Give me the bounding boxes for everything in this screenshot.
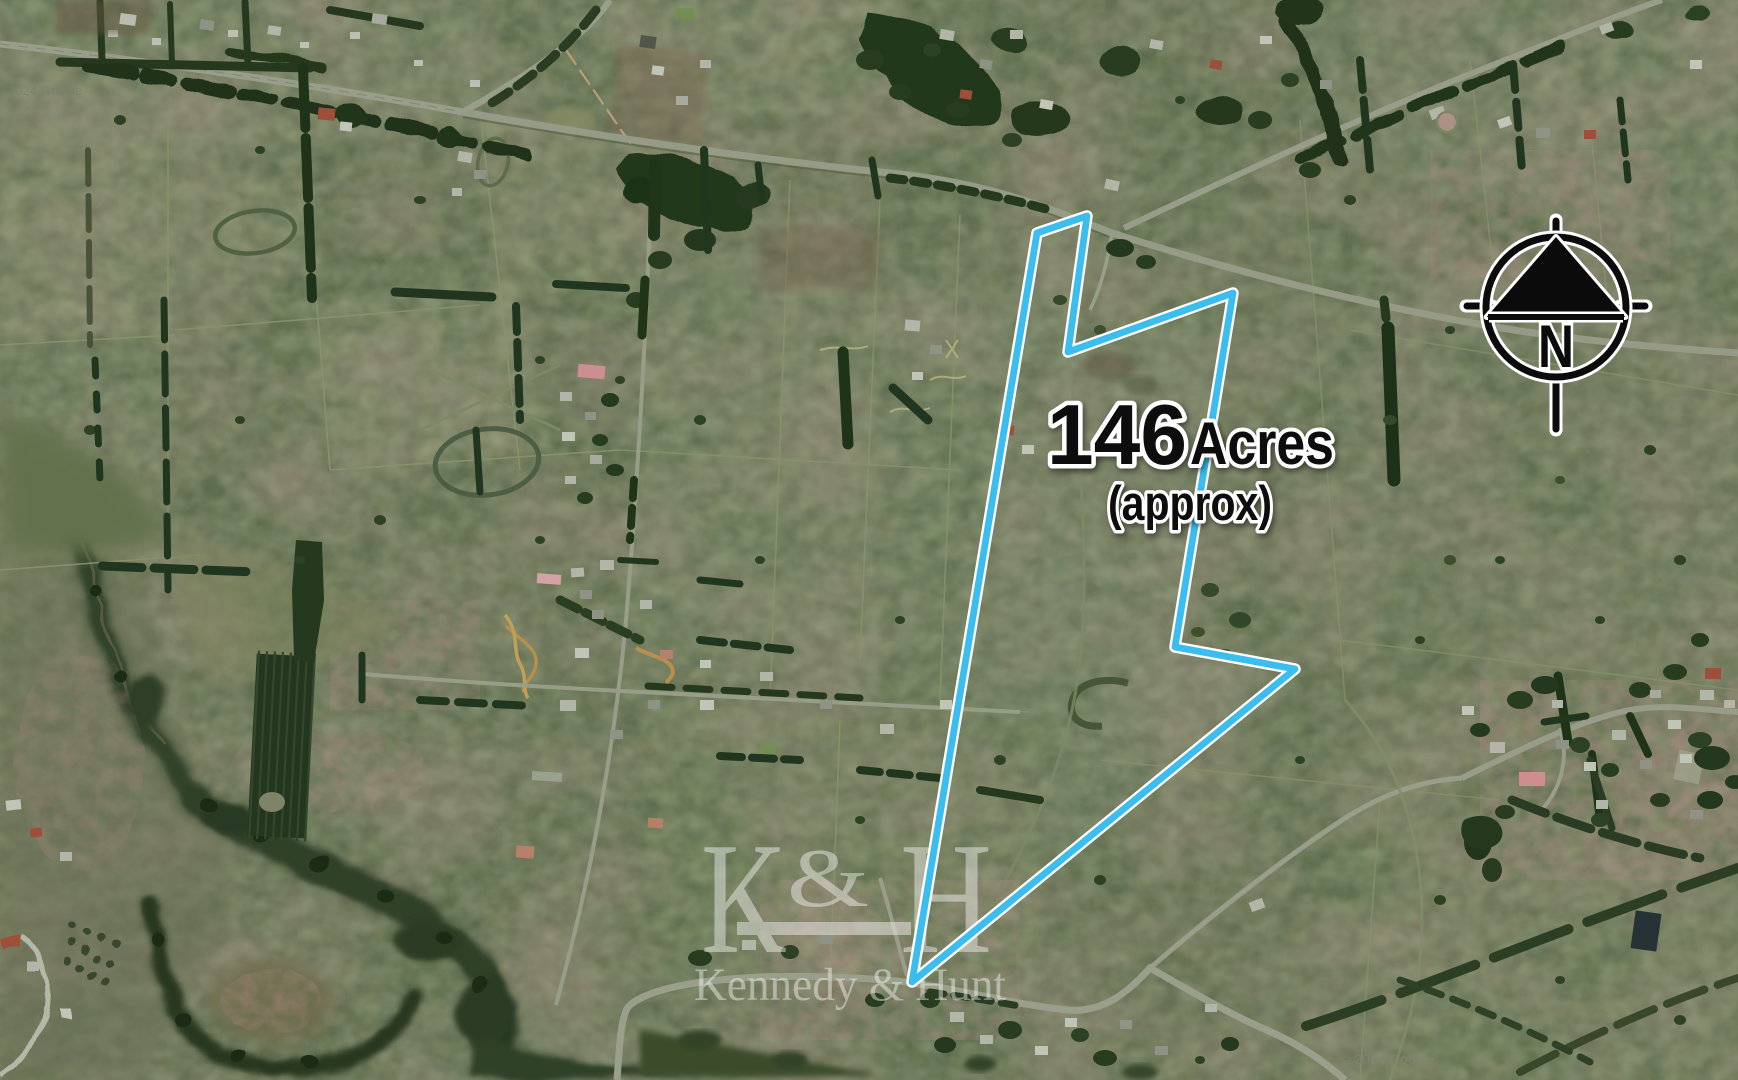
svg-text:(approx): (approx) (1108, 477, 1272, 531)
svg-text:2024 Google: 2024 Google (8, 83, 82, 98)
svg-text:© 2024 Google: © 2024 Google (1340, 1051, 1435, 1067)
svg-text:Kennedy & Hunt: Kennedy & Hunt (694, 959, 1006, 1011)
svg-text:Acres: Acres (1190, 410, 1334, 477)
svg-text:146: 146 (1047, 388, 1187, 483)
svg-text:N: N (1538, 313, 1574, 380)
svg-text:&: & (787, 832, 869, 925)
